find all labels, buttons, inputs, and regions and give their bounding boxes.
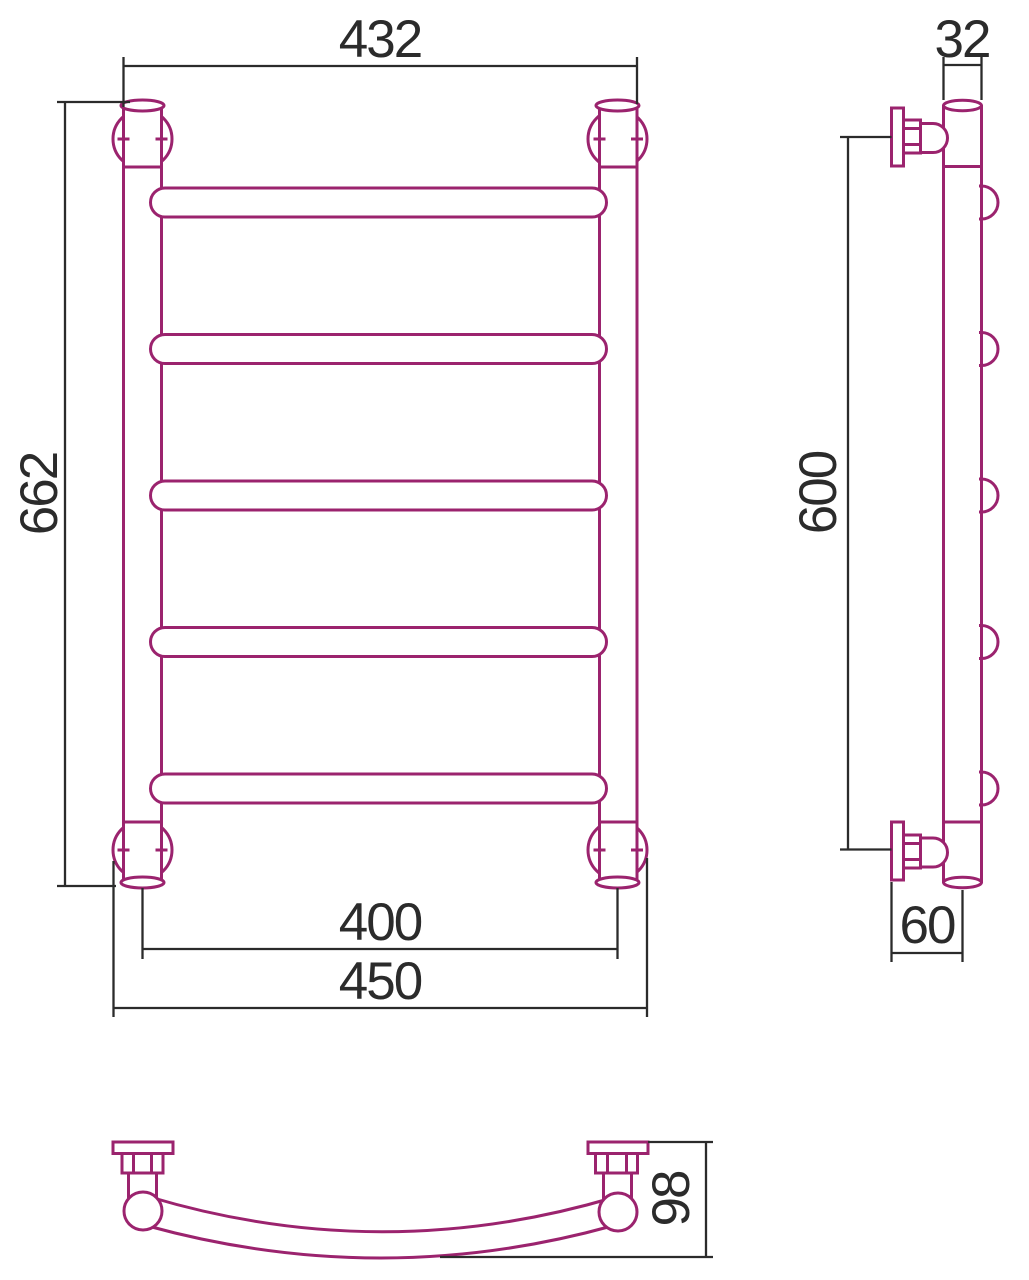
- front-rungs: [151, 188, 607, 803]
- top-bracket-union: [921, 124, 948, 153]
- dim-432-label: 432: [339, 10, 421, 69]
- towel-rung: [151, 774, 607, 803]
- dim-98-label: 98: [642, 1171, 701, 1226]
- post-section-right: [599, 1193, 637, 1231]
- bottom-bracket-flange: [892, 822, 904, 880]
- bottom-bracket-nut: [904, 835, 921, 868]
- dim-600-label: 600: [789, 451, 848, 534]
- cap-bottom-left: [121, 877, 164, 888]
- drawing-canvas: 432 662 400 450 32 600 60 98: [0, 0, 1029, 1280]
- towel-rung: [151, 481, 607, 510]
- flange-plate-left: [113, 1142, 173, 1154]
- flange-plate-right: [588, 1142, 648, 1154]
- dim-400-label: 400: [339, 893, 422, 952]
- cap-top-right: [596, 100, 639, 111]
- nut-right: [596, 1154, 638, 1174]
- towel-rail-technical-drawing: 432 662 400 450 32 600 60 98: [0, 0, 1029, 1280]
- cap-bottom-right: [596, 877, 639, 888]
- side-cap-top: [944, 100, 982, 110]
- dim-32-label: 32: [935, 10, 990, 69]
- nut-left: [122, 1154, 163, 1174]
- towel-rung: [151, 335, 607, 364]
- top-bracket-nut: [904, 120, 921, 153]
- bottom-view: [113, 1142, 648, 1258]
- towel-rung: [151, 628, 607, 657]
- dim-60-label: 60: [900, 896, 955, 955]
- side-post-body: [944, 106, 982, 883]
- post-section-left: [124, 1192, 162, 1230]
- curved-rung-bar: [148, 1197, 612, 1258]
- bracket-stems: [129, 1173, 632, 1207]
- towel-rung: [151, 188, 607, 217]
- top-bracket-flange: [892, 108, 904, 166]
- bottom-bracket-union: [921, 838, 948, 867]
- side-view: [892, 100, 999, 887]
- dim-450-label: 450: [339, 952, 422, 1011]
- dim-662-label: 662: [10, 453, 69, 535]
- front-view: [113, 100, 647, 888]
- side-cap-bottom: [944, 877, 982, 887]
